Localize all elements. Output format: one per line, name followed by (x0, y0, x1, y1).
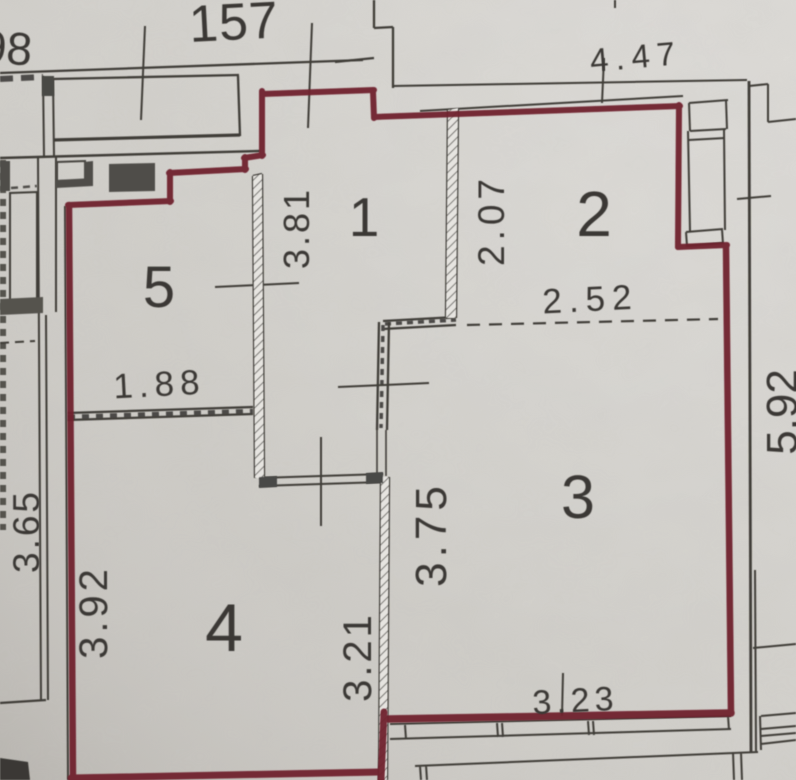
svg-text:2: 2 (576, 178, 612, 250)
svg-text:1.88: 1.88 (112, 363, 206, 407)
svg-text:4: 4 (205, 590, 243, 666)
svg-text:3.75: 3.75 (407, 481, 456, 587)
svg-text:3.65: 3.65 (6, 489, 47, 573)
svg-text:3.81: 3.81 (276, 187, 317, 269)
svg-text:5.92: 5.92 (758, 369, 796, 455)
svg-text:3: 3 (561, 463, 595, 531)
svg-text:2.07: 2.07 (471, 174, 512, 266)
svg-text:2.52: 2.52 (541, 278, 639, 322)
svg-text:1: 1 (349, 186, 380, 248)
svg-text:5: 5 (143, 255, 175, 320)
svg-text:98: 98 (0, 20, 34, 75)
svg-text:157: 157 (188, 0, 281, 54)
svg-text:3.92: 3.92 (72, 565, 116, 659)
svg-text:3.23: 3.23 (531, 680, 619, 722)
svg-text:3.21: 3.21 (336, 612, 380, 702)
